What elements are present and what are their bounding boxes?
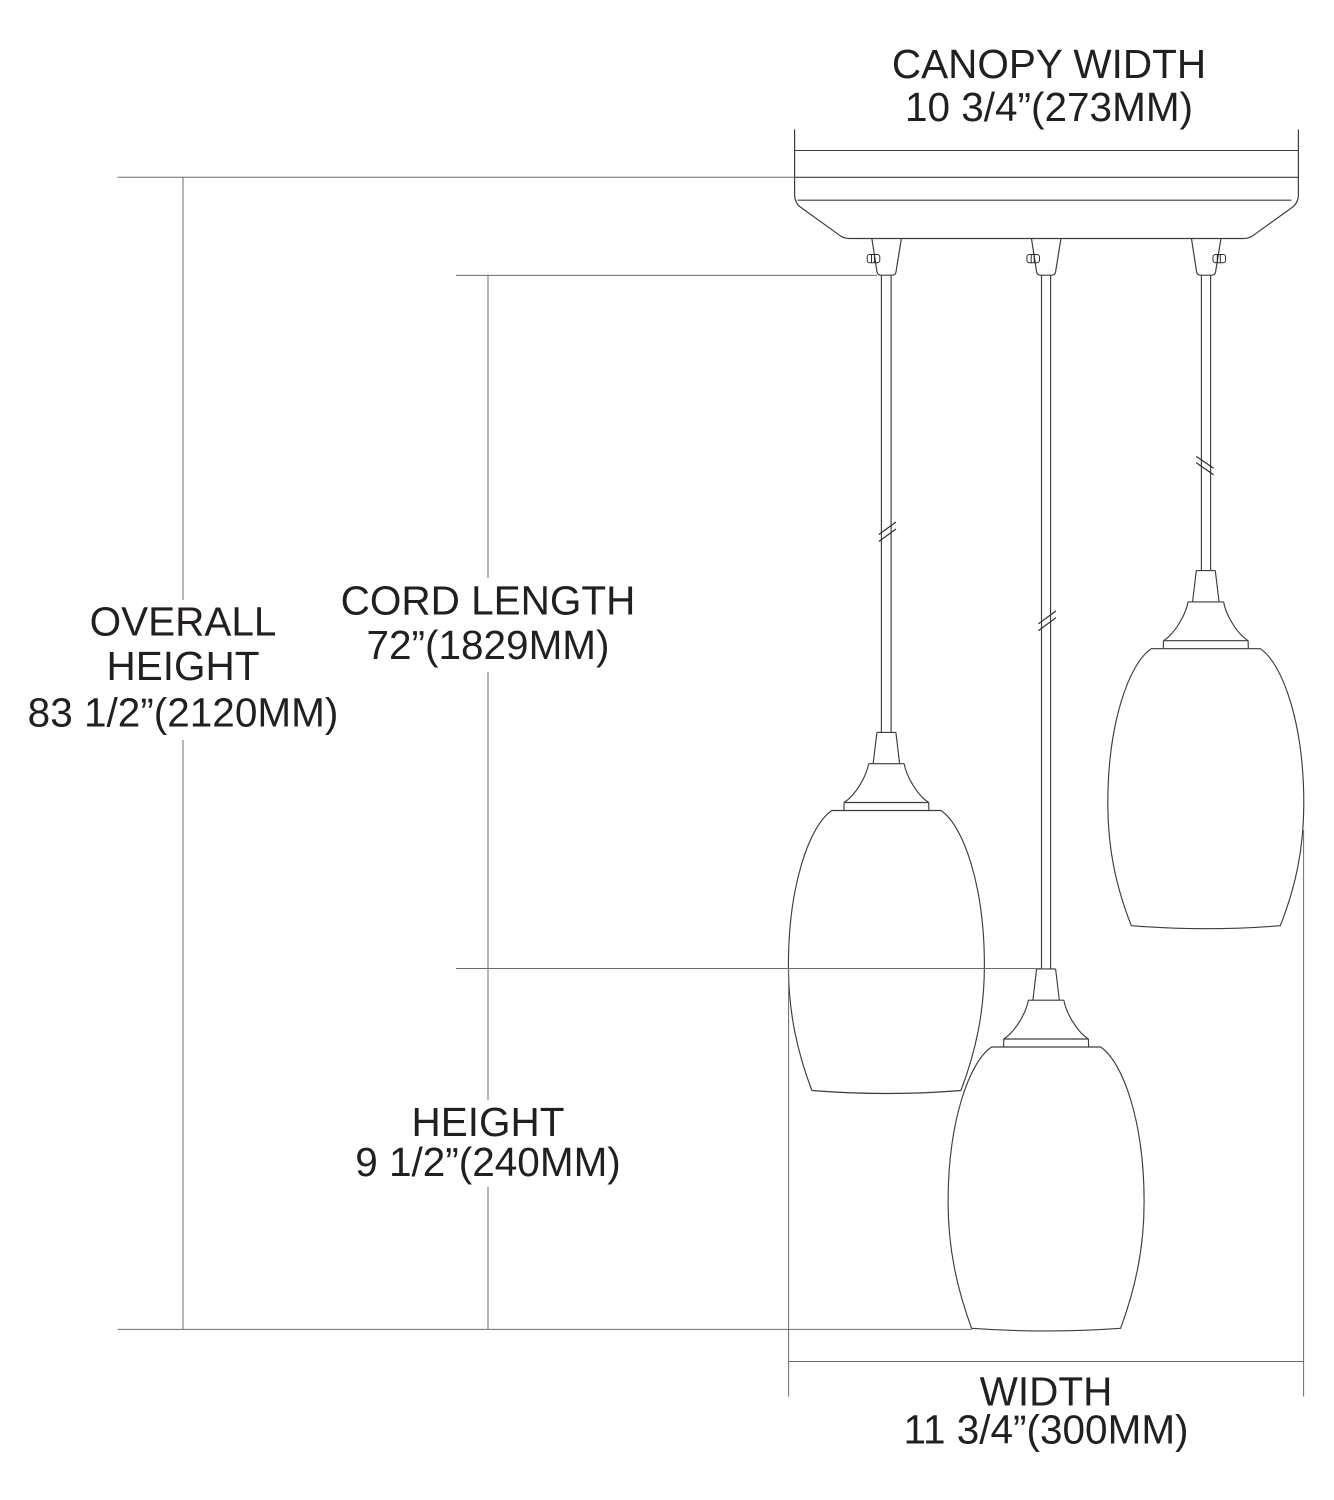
svg-text:72”(1829MM): 72”(1829MM)	[366, 622, 609, 668]
svg-text:HEIGHT: HEIGHT	[106, 643, 259, 689]
svg-text:CANOPY WIDTH: CANOPY WIDTH	[892, 41, 1206, 87]
svg-text:9 1/2”(240MM): 9 1/2”(240MM)	[355, 1139, 621, 1185]
svg-text:CORD LENGTH: CORD LENGTH	[341, 578, 636, 624]
svg-text:OVERALL: OVERALL	[90, 599, 277, 645]
svg-text:10 3/4”(273MM): 10 3/4”(273MM)	[905, 84, 1193, 130]
svg-text:83 1/2”(2120MM): 83 1/2”(2120MM)	[28, 690, 339, 736]
svg-text:11 3/4”(300MM): 11 3/4”(300MM)	[903, 1406, 1188, 1452]
